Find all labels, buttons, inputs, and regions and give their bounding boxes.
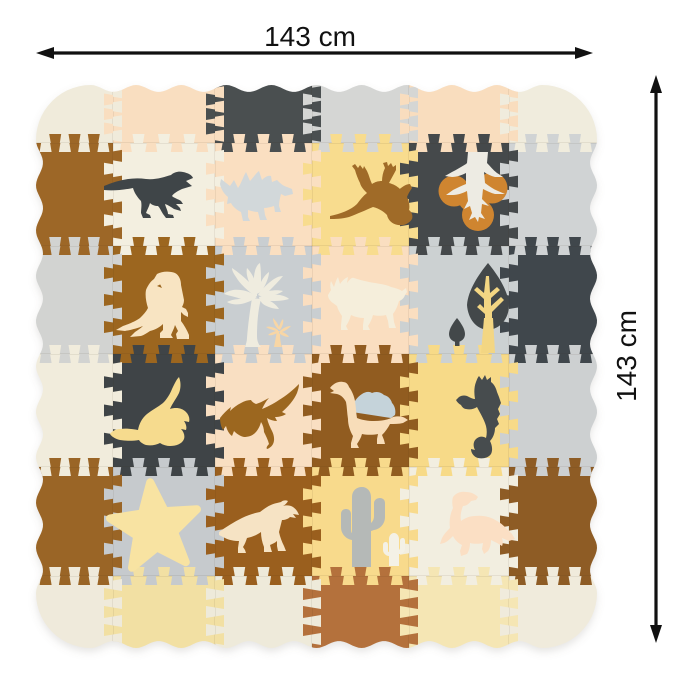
- svg-text:143 cm: 143 cm: [611, 310, 642, 402]
- svg-text:143 cm: 143 cm: [264, 21, 356, 52]
